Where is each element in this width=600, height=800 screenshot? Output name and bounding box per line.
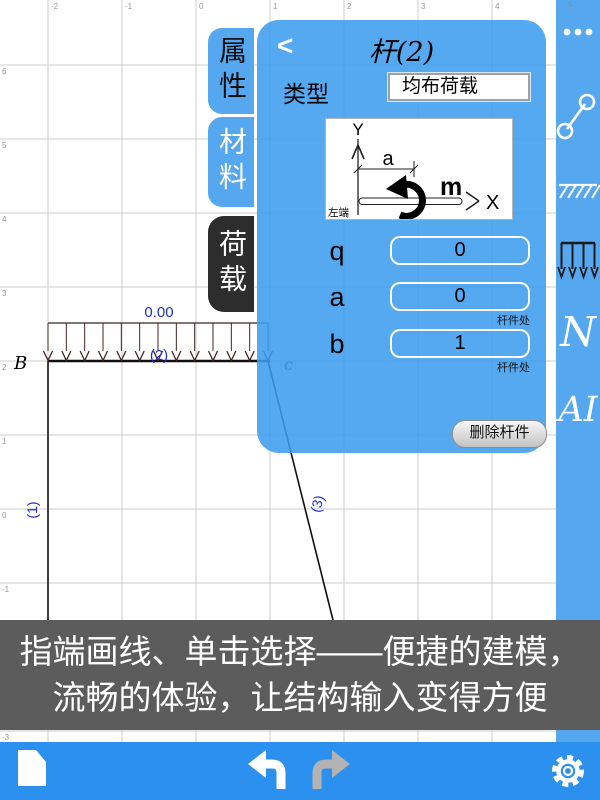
draw-member-tool[interactable] [556, 90, 600, 142]
grid-label: 3 [2, 289, 7, 298]
grid-label: 1 [273, 2, 278, 11]
redo-button[interactable] [312, 748, 356, 794]
field-row-b: b 1 [257, 329, 546, 359]
tab-load-active[interactable]: 荷载 [208, 216, 254, 312]
grid-label: 1 [2, 437, 7, 446]
grid-label: 6 [2, 67, 7, 76]
tab-material[interactable]: 材料 [208, 117, 254, 207]
a-label: a [319, 282, 355, 313]
a-input[interactable]: 0 [390, 282, 530, 311]
member-bar [359, 198, 462, 205]
app-screen: -2-10123456543210-1-2-3 0.00 (2) B c (1)… [0, 0, 600, 800]
moment-label: m [440, 173, 462, 201]
grid-label: -3 [2, 733, 10, 742]
load-value-label: 0.00 [144, 304, 173, 321]
panel-title: 杆(2) [297, 30, 506, 69]
ai-tool[interactable]: AI [556, 390, 600, 430]
grid-label: -1 [2, 585, 10, 594]
more-options-button[interactable] [556, 24, 600, 40]
x-arrowhead-icon [466, 192, 479, 210]
load-arrowhead [80, 351, 89, 361]
member-2-label: (2) [150, 347, 168, 364]
more-dots-icon [556, 24, 600, 40]
moment-arrowhead-icon [386, 175, 408, 199]
grid-label: -2 [51, 2, 59, 11]
load-arrowhead [135, 351, 144, 361]
left-end-label: 左端 [328, 206, 349, 219]
grid-label: -1 [125, 2, 133, 11]
member-3-label: (3) [307, 494, 327, 514]
field-row-q: q 0 [257, 236, 546, 266]
y-axis-label: Y [352, 120, 363, 139]
load-arrowhead [245, 351, 254, 361]
support-icon [556, 178, 600, 202]
load-arrowhead [227, 351, 236, 361]
q-input[interactable]: 0 [390, 236, 530, 265]
b-label: b [319, 329, 355, 360]
hint-line-2: 流畅的体验，让结构输入变得方便 [53, 675, 548, 721]
grid-label: 2 [2, 363, 7, 372]
b-unit-note: 杆件处 [497, 359, 530, 375]
load-diagram: Y a m X 左端 [325, 118, 513, 220]
grid-label: 2 [347, 2, 352, 11]
member-load-panel: < 杆(2) 类型 均布荷载 Y a m X 左端 q 0 [257, 20, 546, 453]
grid-label: 5 [568, 0, 572, 9]
type-input[interactable]: 均布荷载 [388, 73, 530, 101]
q-label: q [319, 236, 355, 267]
delete-member-button[interactable]: 删除杆件 [452, 420, 547, 448]
grid-label: 4 [2, 215, 7, 224]
hint-banner: 指端画线、单击选择——便捷的建模， 流畅的体验，让结构输入变得方便 [0, 620, 600, 730]
axial-force-tool[interactable]: N [556, 308, 600, 356]
grid-label: 0 [199, 2, 204, 11]
load-arrowhead [117, 351, 126, 361]
grid-label: 4 [495, 2, 500, 11]
undo-arrow-icon [248, 750, 281, 789]
a-unit-note: 杆件处 [497, 312, 530, 328]
x-axis-label: X [486, 192, 499, 214]
member-1-label: (1) [24, 501, 40, 518]
grid-label: 0 [2, 511, 7, 520]
grid-label: 3 [421, 2, 426, 11]
load-arrowhead [172, 351, 181, 361]
hint-line-1: 指端画线、单击选择——便捷的建模， [20, 629, 581, 675]
node-b-label: B [13, 353, 27, 374]
bottom-toolbar [0, 742, 600, 800]
tab-properties[interactable]: 属性 [208, 28, 254, 114]
load-arrowhead [62, 351, 71, 361]
type-label: 类型 [283, 75, 329, 109]
gear-icon [555, 758, 582, 785]
distributed-load-tool[interactable] [556, 240, 600, 286]
load-arrowhead [99, 351, 108, 361]
load-arrowhead [209, 351, 218, 361]
distributed-load-icon [556, 240, 600, 286]
document-icon [18, 750, 46, 786]
undo-button[interactable] [242, 748, 286, 794]
new-file-button[interactable] [16, 748, 48, 788]
redo-arrow-icon [317, 750, 350, 789]
member-line-icon [556, 90, 600, 142]
grid-label: 5 [2, 141, 7, 150]
support-tool[interactable] [556, 178, 600, 202]
load-arrowhead [190, 351, 199, 361]
settings-button[interactable] [546, 750, 590, 794]
b-input[interactable]: 1 [390, 329, 530, 358]
dim-a-label: a [382, 148, 394, 170]
field-row-a: a 0 [257, 282, 546, 312]
